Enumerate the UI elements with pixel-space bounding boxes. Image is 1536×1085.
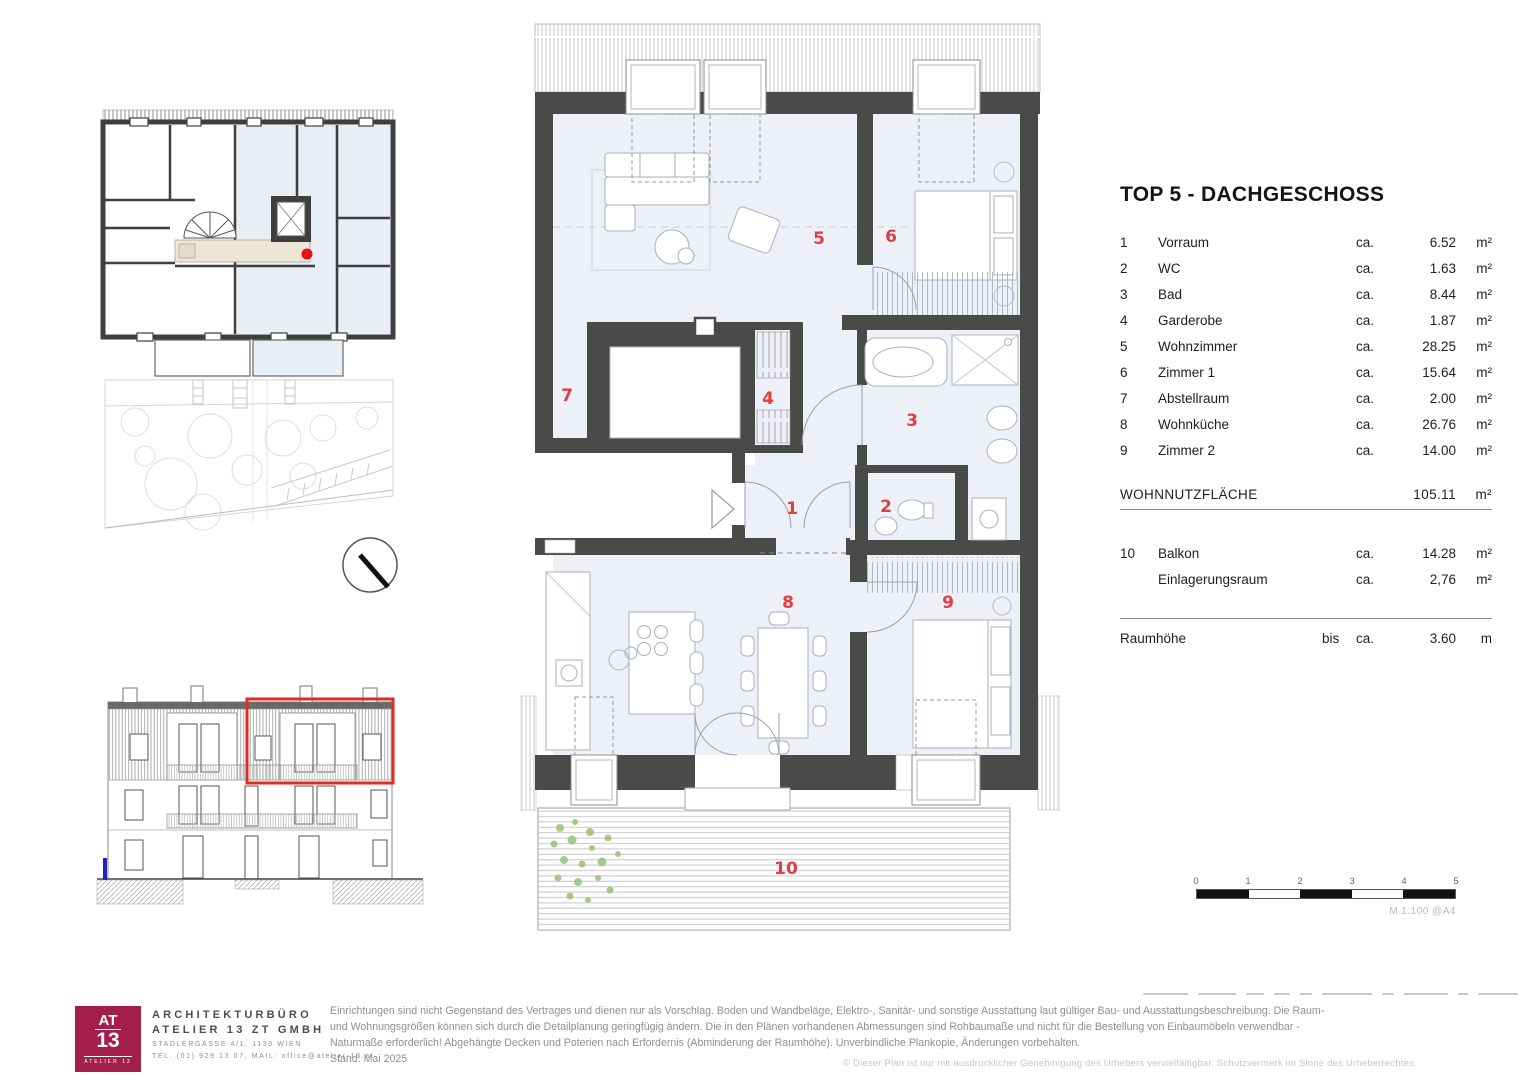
row-area: 26.76 [1398,417,1456,432]
row-area: 28.25 [1398,339,1456,354]
row-name: Garderobe [1158,313,1356,328]
row-unit: m² [1456,287,1492,302]
height-value: 3.60 [1398,631,1456,646]
row-nr: 5 [1120,339,1158,354]
row-ca: ca. [1356,235,1398,250]
row-area: 15.64 [1398,365,1456,380]
total-unit: m² [1456,487,1492,502]
row-nr: 4 [1120,313,1158,328]
redacted-dash [1246,993,1264,995]
scale-tick: 2 [1297,876,1302,887]
room-label-abstellraum: 7 [561,386,573,406]
row-name: Wohnküche [1158,417,1356,432]
redacted-dash [1458,993,1468,995]
room-height-row: Raumhöhe bis ca. 3.60 m [1120,618,1492,646]
row-name: Zimmer 2 [1158,443,1356,458]
chimneys [123,686,377,704]
row-name: Einlagerungsraum [1158,572,1356,587]
row-ca: ca. [1356,287,1398,302]
scale-tick: 4 [1401,876,1406,887]
redacted-dash [1274,993,1290,995]
height-prefix: bis [1322,631,1356,646]
room-label-vorraum: 1 [786,499,798,519]
row-name: Wohnzimmer [1158,339,1356,354]
scale-segment [1403,890,1455,898]
room-label-wohnzimmer: 5 [813,229,825,249]
scale-tick: 3 [1349,876,1354,887]
table-row: 1Vorraumca.6.52m² [1120,229,1492,255]
bedroom2-furniture [913,597,1011,748]
row-area: 1.87 [1398,313,1456,328]
row-ca: ca. [1356,391,1398,406]
redacted-dash [1143,993,1188,995]
key-plan [75,88,425,603]
room-label-bad: 3 [906,411,918,431]
row-name: WC [1158,261,1356,276]
scale-segment [1352,890,1404,898]
row-nr: 7 [1120,391,1158,406]
row-unit: m² [1456,546,1492,561]
legend-panel: TOP 5 - DACHGESCHOSS 1Vorraumca.6.52m² 2… [1120,183,1492,646]
scale-bar: 0 1 2 3 4 5 M 1:100 @A4 [1196,876,1456,917]
row-area: 6.52 [1398,235,1456,250]
key-plan-building [103,110,393,341]
row-unit: m² [1456,261,1492,276]
row-name: Abstellraum [1158,391,1356,406]
room-label-zimmer1: 6 [885,227,897,247]
row-area: 2.00 [1398,391,1456,406]
room-label-wc: 2 [880,497,892,517]
scale-tick: 1 [1245,876,1250,887]
scale-caption: M 1:100 @A4 [1196,906,1456,917]
scale-segment [1249,890,1301,898]
row-nr: 10 [1120,546,1158,561]
row-name: Zimmer 1 [1158,365,1356,380]
entry-arrow [712,490,734,528]
redacted-dash [1478,993,1518,995]
unit-location-dot [302,249,313,260]
architect-logo: AT 13 ATELIER 13 [75,1006,141,1072]
row-ca: ca. [1356,365,1398,380]
stairwell-void [610,347,740,438]
row-unit: m² [1456,235,1492,250]
row-ca: ca. [1356,339,1398,354]
room-label-wohnkueche: 8 [782,593,794,613]
redacted-dash [1198,993,1236,995]
room-table: 1Vorraumca.6.52m² 2WCca.1.63m² 3Badca.8.… [1120,229,1492,463]
redacted-dash [1322,993,1372,995]
elevation-blue-mark [103,858,107,880]
table-row: 2WCca.1.63m² [1120,255,1492,281]
row-ca: ca. [1356,313,1398,328]
table-row: 9Zimmer 2ca.14.00m² [1120,437,1492,463]
logo-subtext: ATELIER 13 [84,1056,131,1065]
table-row: 5Wohnzimmerca.28.25m² [1120,333,1492,359]
table-row: Einlagerungsraumca.2,76m² [1120,566,1492,592]
redacted-marks [1143,993,1518,995]
table-row: 10Balkonca.14.28m² [1120,540,1492,566]
scale-bar-segments [1196,889,1456,899]
elevation-facade [97,686,423,904]
row-nr: 1 [1120,235,1158,250]
garden [105,380,393,530]
plan-date: Stand: Mai 2025 [330,1053,407,1065]
row-name: Balkon [1158,546,1356,561]
row-area: 14.28 [1398,546,1456,561]
elevator [271,196,311,242]
total-value: 105.11 [1398,487,1456,502]
table-row: 3Badca.8.44m² [1120,281,1492,307]
total-label: WOHNNUTZFLÄCHE [1120,487,1356,502]
row-unit: m² [1456,339,1492,354]
redacted-dash [1300,993,1312,995]
page-title: TOP 5 - DACHGESCHOSS [1120,183,1492,207]
north-arrow [343,538,397,592]
room-label-garderobe: 4 [762,389,774,409]
table-row: 8Wohnkücheca.26.76m² [1120,411,1492,437]
row-ca: ca. [1356,572,1398,587]
row-area: 14.00 [1398,443,1456,458]
row-unit: m² [1456,391,1492,406]
redacted-dash [1404,993,1448,995]
row-name: Vorraum [1158,235,1356,250]
total-area-row: WOHNNUTZFLÄCHE 105.11 m² [1120,487,1492,510]
logo-text-13: 13 [96,1030,119,1052]
row-ca: ca. [1356,261,1398,276]
table-row: 6Zimmer 1ca.15.64m² [1120,359,1492,385]
row-unit: m² [1456,572,1492,587]
row-nr: 9 [1120,443,1158,458]
floorplan-sheet: { "title": "TOP 5 - DACHGESCHOSS", "lege… [0,0,1536,1085]
height-ca: ca. [1356,631,1398,646]
row-area: 8.44 [1398,287,1456,302]
row-name: Bad [1158,287,1356,302]
row-ca: ca. [1356,443,1398,458]
elevation-drawing [95,672,425,912]
row-nr: 6 [1120,365,1158,380]
row-unit: m² [1456,417,1492,432]
main-floor-plan: 5 6 7 4 3 1 2 8 9 10 [520,20,1060,940]
height-unit: m [1456,631,1492,646]
row-ca: ca. [1356,417,1398,432]
row-unit: m² [1456,313,1492,328]
redacted-dash [1382,993,1394,995]
table-row: 4Garderobeca.1.87m² [1120,307,1492,333]
room-label-zimmer2: 9 [942,593,954,613]
scale-segment [1300,890,1352,898]
height-label: Raumhöhe [1120,631,1322,646]
scale-tick: 0 [1193,876,1198,887]
copyright-note: © Dieser Plan ist nur mit ausdrücklicher… [843,1058,1503,1069]
wall-notch [695,318,715,336]
scale-segment [1197,890,1249,898]
scale-tick: 5 [1453,876,1458,887]
row-nr: 8 [1120,417,1158,432]
row-unit: m² [1456,365,1492,380]
room-label-balkon: 10 [774,859,798,879]
key-plan-annexes [155,340,343,376]
table-row: 7Abstellraumca.2.00m² [1120,385,1492,411]
row-ca: ca. [1356,546,1398,561]
logo-text-at: AT [95,1013,122,1030]
disclaimer-text: Einrichtungen sind nicht Gegenstand des … [330,1004,1330,1052]
row-area: 2,76 [1398,572,1456,587]
row-unit: m² [1456,443,1492,458]
extras-table: 10Balkonca.14.28m² Einlagerungsraumca.2,… [1120,540,1492,592]
row-nr: 2 [1120,261,1158,276]
scale-ticks: 0 1 2 3 4 5 [1196,876,1456,889]
row-area: 1.63 [1398,261,1456,276]
row-nr: 3 [1120,287,1158,302]
